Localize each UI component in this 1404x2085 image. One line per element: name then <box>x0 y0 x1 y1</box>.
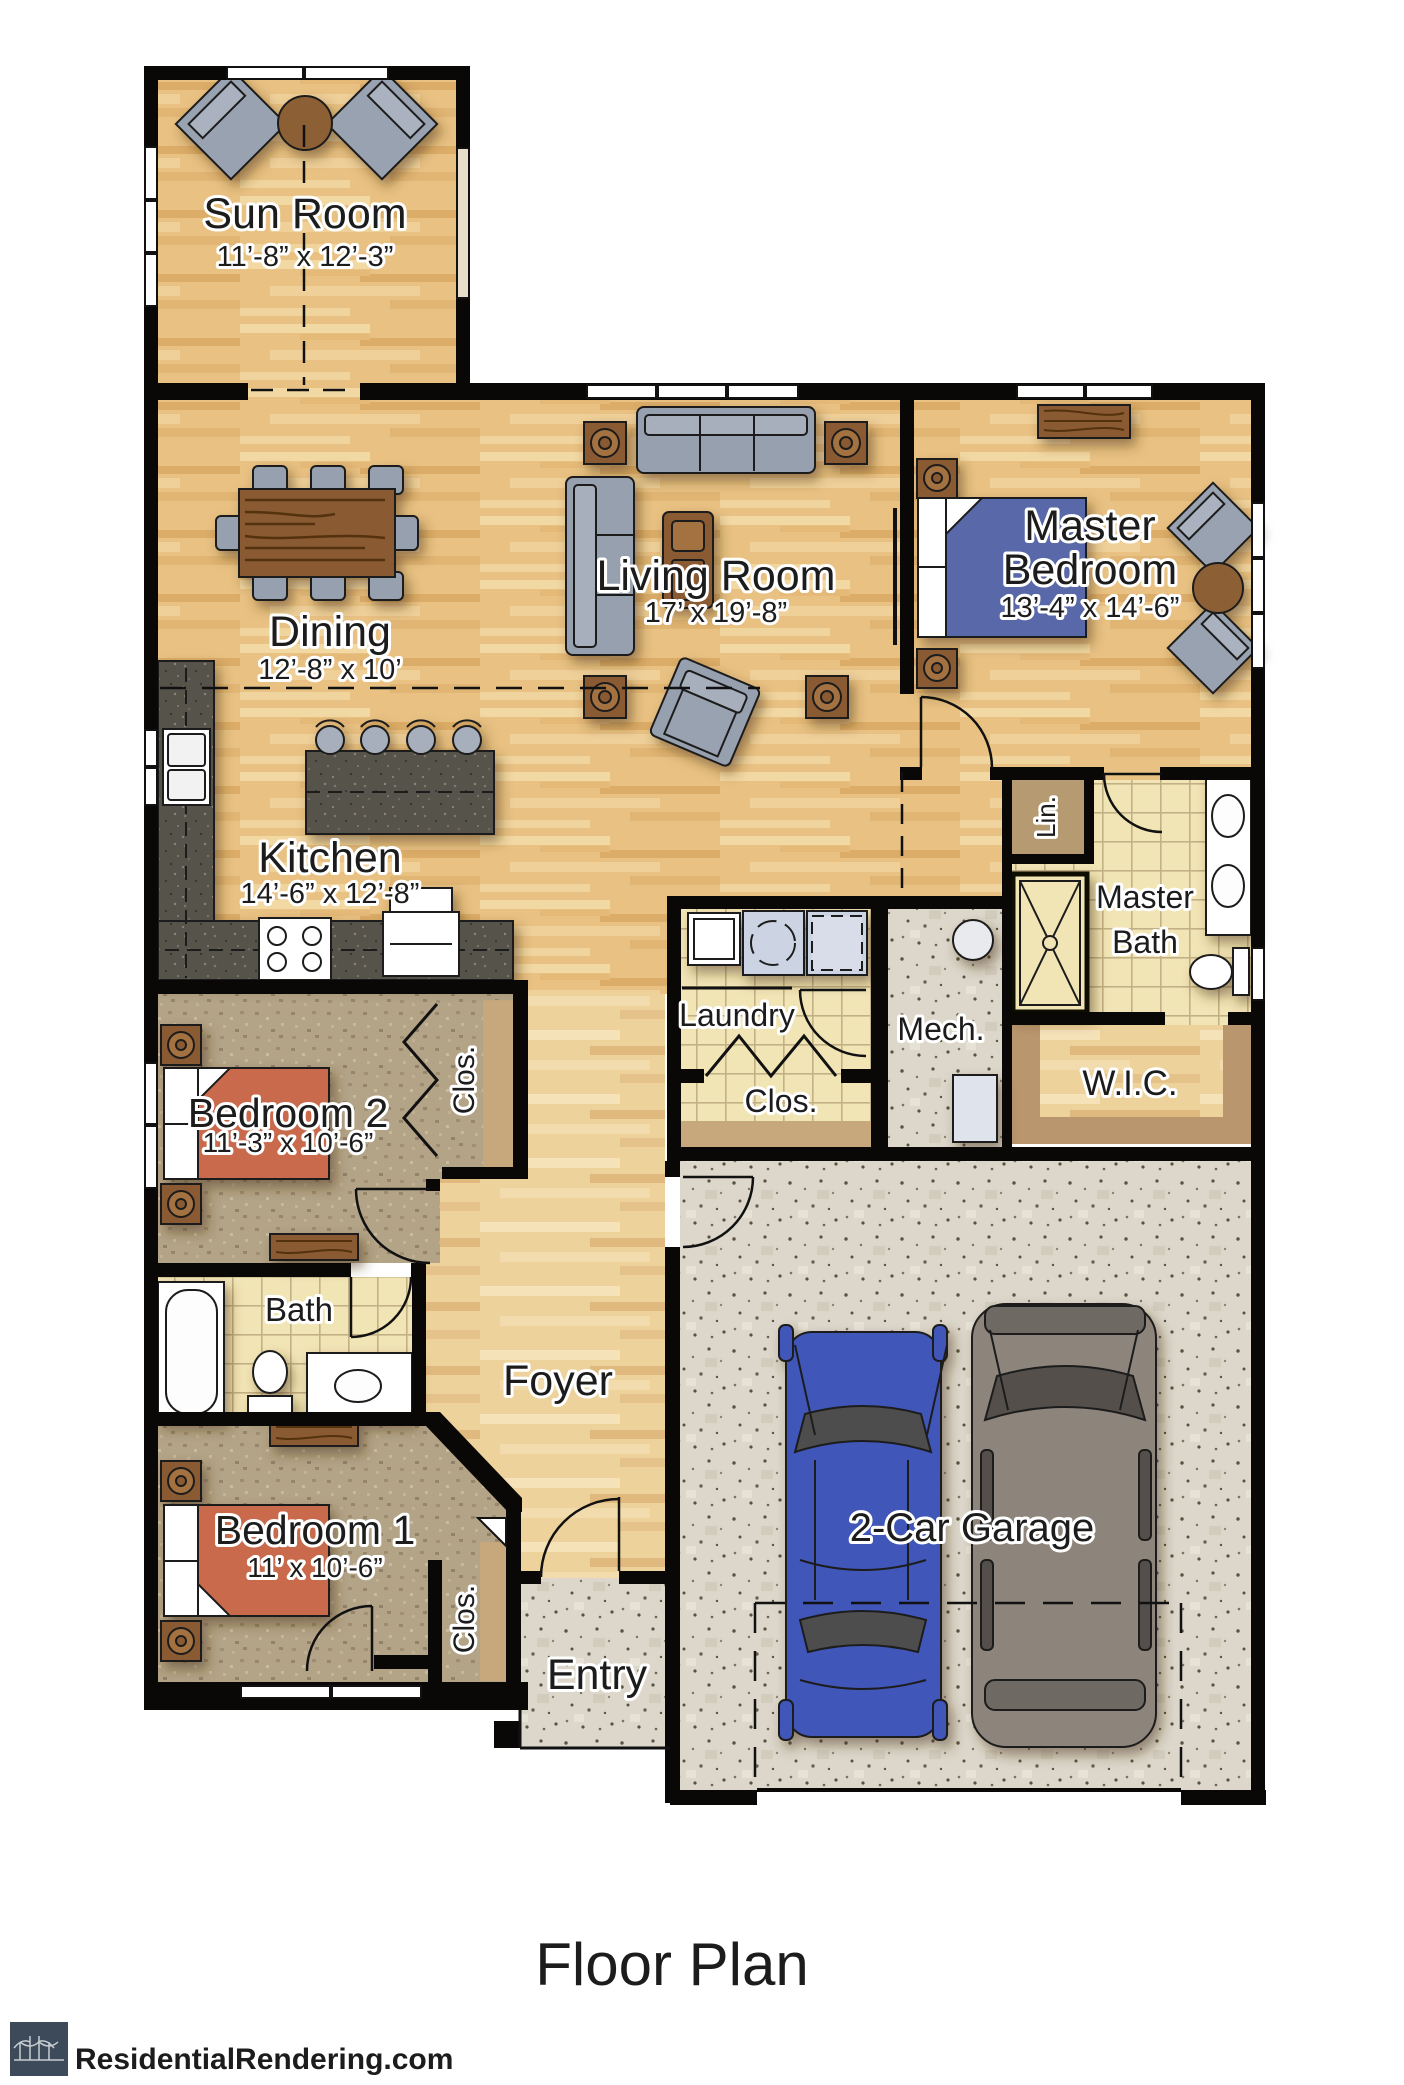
svg-text:12’-8” x 10’: 12’-8” x 10’ <box>258 654 401 686</box>
svg-text:13’-4” x 14’-6”: 13’-4” x 14’-6” <box>1001 592 1180 624</box>
svg-text:11’ x 10’-6”: 11’ x 10’-6” <box>247 1552 382 1583</box>
svg-text:Foyer: Foyer <box>503 1357 613 1405</box>
svg-text:Sun Room: Sun Room <box>203 190 406 238</box>
svg-text:Bedroom 1: Bedroom 1 <box>215 1507 416 1553</box>
svg-text:Master: Master <box>1024 502 1155 550</box>
svg-text:Master: Master <box>1096 879 1194 915</box>
svg-text:Lin.: Lin. <box>1031 796 1061 838</box>
svg-text:Dining: Dining <box>269 608 391 656</box>
svg-text:Bath: Bath <box>1112 924 1178 960</box>
svg-text:Mech.: Mech. <box>897 1011 984 1047</box>
svg-text:Floor Plan: Floor Plan <box>535 1931 808 1998</box>
svg-text:17’ x 19’-8”: 17’ x 19’-8” <box>645 597 787 629</box>
svg-text:ResidentialRendering.com: ResidentialRendering.com <box>75 2043 453 2076</box>
svg-text:Laundry: Laundry <box>679 997 795 1033</box>
svg-text:11’-3” x 10’-6”: 11’-3” x 10’-6” <box>203 1127 374 1158</box>
svg-text:Bath: Bath <box>265 1291 333 1328</box>
svg-text:W.I.C.: W.I.C. <box>1082 1064 1177 1103</box>
svg-text:Living Room: Living Room <box>597 552 836 600</box>
svg-text:Clos.: Clos. <box>745 1083 818 1119</box>
svg-text:11’-8” x 12’-3”: 11’-8” x 12’-3” <box>217 241 394 273</box>
svg-text:Kitchen: Kitchen <box>258 834 401 882</box>
svg-text:14’-6” x 12’-8”: 14’-6” x 12’-8” <box>241 878 420 910</box>
svg-text:Bedroom: Bedroom <box>1003 546 1177 594</box>
svg-text:Entry: Entry <box>547 1651 648 1699</box>
svg-text:2-Car Garage: 2-Car Garage <box>850 1506 1095 1550</box>
svg-text:Clos.: Clos. <box>448 1046 481 1114</box>
svg-text:Clos.: Clos. <box>448 1585 481 1653</box>
